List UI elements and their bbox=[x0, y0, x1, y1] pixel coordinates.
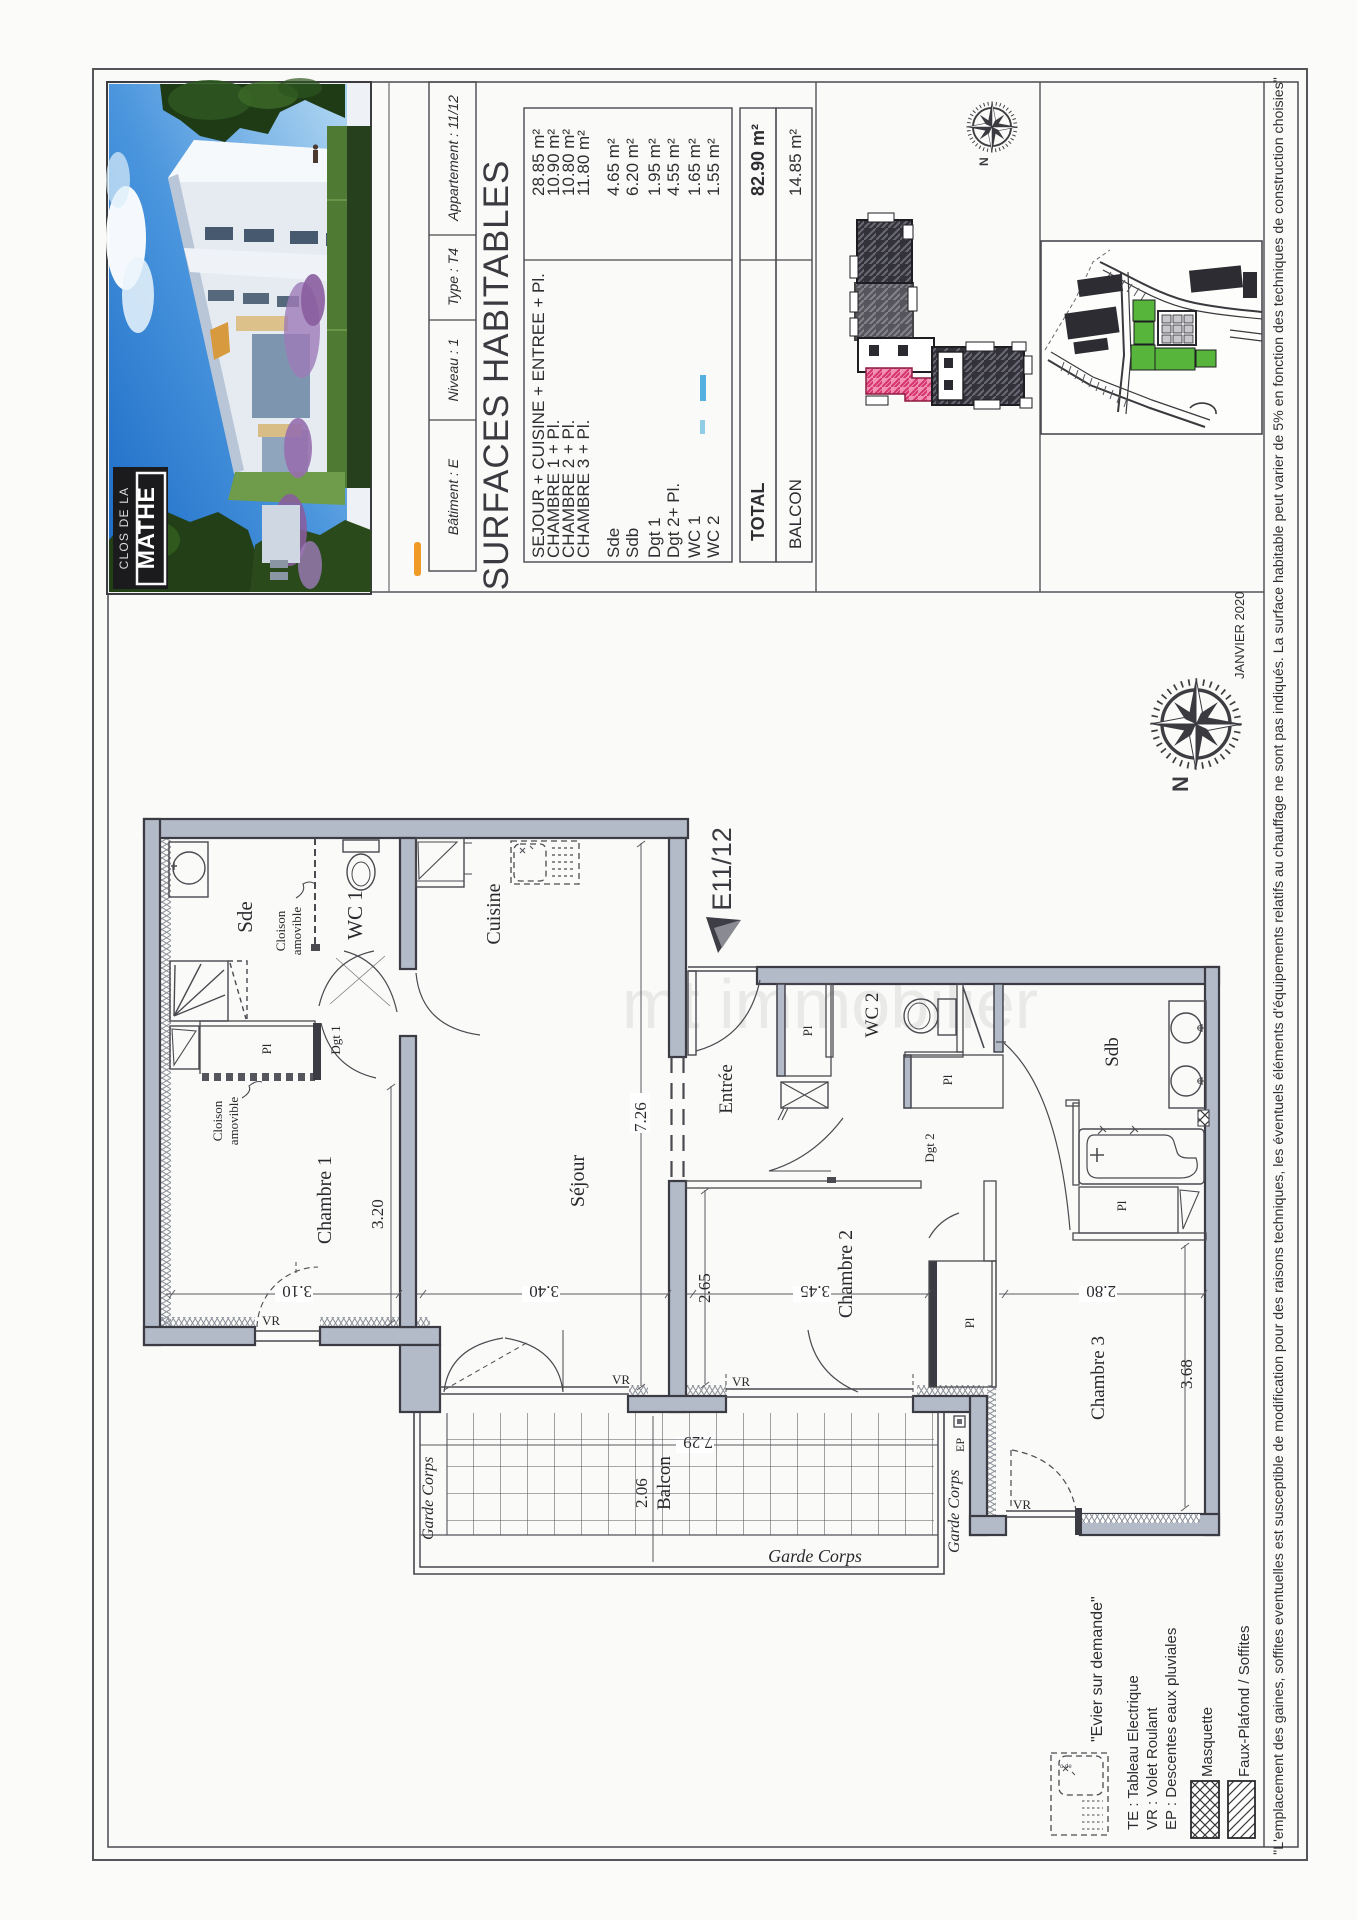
svg-text:Chambre 1: Chambre 1 bbox=[314, 1156, 336, 1244]
svg-text:WC 1: WC 1 bbox=[343, 890, 367, 940]
svg-text:TOTAL: TOTAL bbox=[748, 483, 768, 541]
svg-text:o de: o de bbox=[1060, 1764, 1072, 1770]
svg-text:7.26: 7.26 bbox=[631, 1102, 650, 1132]
svg-text:Cloison: Cloison bbox=[210, 1100, 225, 1141]
svg-text:Niveau : 1: Niveau : 1 bbox=[445, 338, 461, 401]
svg-text:Bâtiment : E: Bâtiment : E bbox=[445, 458, 461, 535]
svg-text:EP : Descentes eaux pluviales: EP : Descentes eaux pluviales bbox=[1163, 1628, 1180, 1830]
svg-text:TE : Tableau Electrique: TE : Tableau Electrique bbox=[1125, 1675, 1142, 1830]
svg-text:Sdb: Sdb bbox=[623, 528, 642, 558]
svg-text:amovible: amovible bbox=[226, 1097, 241, 1146]
svg-text:EP: EP bbox=[953, 1438, 967, 1452]
svg-text:3.20: 3.20 bbox=[368, 1199, 387, 1229]
svg-text:N: N bbox=[977, 157, 991, 166]
svg-text:"Evier sur demande": "Evier sur demande" bbox=[1089, 1596, 1106, 1742]
svg-text:VR: VR bbox=[262, 1313, 280, 1328]
svg-text:Dgt 2+ Pl.: Dgt 2+ Pl. bbox=[664, 483, 683, 558]
svg-text:1.95 m²: 1.95 m² bbox=[645, 138, 664, 196]
svg-text:Pl: Pl bbox=[259, 1043, 274, 1054]
svg-text:amovible: amovible bbox=[289, 907, 304, 956]
svg-text:CHAMBRE 3 + Pl.: CHAMBRE 3 + Pl. bbox=[574, 420, 593, 558]
svg-text:BALCON: BALCON bbox=[786, 479, 805, 549]
svg-text:Garde Corps: Garde Corps bbox=[420, 1457, 437, 1540]
svg-text:14.85 m²: 14.85 m² bbox=[786, 129, 805, 196]
svg-text:WC 2: WC 2 bbox=[862, 993, 883, 1038]
svg-text:Chambre 2: Chambre 2 bbox=[835, 1230, 857, 1318]
svg-text:WC 1: WC 1 bbox=[685, 516, 704, 559]
svg-text:Appartement : 11/12: Appartement : 11/12 bbox=[445, 95, 461, 222]
svg-text:Type : T4: Type : T4 bbox=[445, 248, 461, 306]
svg-text:Sde: Sde bbox=[233, 901, 257, 933]
svg-text:3.68: 3.68 bbox=[1177, 1359, 1196, 1389]
svg-text:JANVIER 2020: JANVIER 2020 bbox=[1232, 592, 1247, 679]
svg-text:Cuisine: Cuisine bbox=[483, 883, 505, 944]
svg-text:Masquette: Masquette bbox=[1199, 1707, 1216, 1777]
svg-text:Chambre 3: Chambre 3 bbox=[1088, 1336, 1109, 1420]
svg-text:Entrée: Entrée bbox=[716, 1064, 737, 1114]
svg-text:WC 2: WC 2 bbox=[704, 516, 723, 559]
svg-text:Dgt 1: Dgt 1 bbox=[645, 517, 664, 558]
svg-text:Séjour: Séjour bbox=[567, 1155, 589, 1208]
svg-text:VR: VR bbox=[1013, 1497, 1031, 1512]
svg-text:4.65 m²: 4.65 m² bbox=[604, 138, 623, 196]
svg-text:Faux-Plafond / Soffites: Faux-Plafond / Soffites bbox=[1236, 1626, 1253, 1777]
svg-text:Dgt 1: Dgt 1 bbox=[328, 1025, 343, 1054]
svg-text:3.10: 3.10 bbox=[282, 1282, 312, 1301]
svg-text:Garde Corps: Garde Corps bbox=[768, 1546, 862, 1566]
svg-text:2.65: 2.65 bbox=[695, 1273, 714, 1303]
svg-text:3.45: 3.45 bbox=[800, 1282, 830, 1301]
svg-text:Garde Corps: Garde Corps bbox=[946, 1470, 963, 1553]
svg-text:CLOS DE LA: CLOS DE LA bbox=[117, 487, 131, 570]
svg-text:Cloison: Cloison bbox=[273, 910, 288, 951]
svg-text:Pl: Pl bbox=[1114, 1200, 1129, 1211]
svg-text:Pl: Pl bbox=[962, 1317, 977, 1328]
svg-text:MATHE: MATHE bbox=[133, 487, 159, 570]
svg-text:SURFACES HABITABLES: SURFACES HABITABLES bbox=[477, 160, 516, 591]
svg-text:Pl: Pl bbox=[800, 1025, 815, 1036]
svg-text:2.80: 2.80 bbox=[1086, 1282, 1116, 1301]
svg-text:VR : Volet Roulant: VR : Volet Roulant bbox=[1144, 1707, 1161, 1830]
svg-text:VR: VR bbox=[732, 1374, 750, 1389]
svg-text:Pl: Pl bbox=[940, 1074, 955, 1085]
svg-text:"L'emplacement des gaines, sof: "L'emplacement des gaines, soffites even… bbox=[1271, 77, 1287, 1855]
svg-text:4.55 m²: 4.55 m² bbox=[664, 138, 683, 196]
svg-text:E11/12: E11/12 bbox=[707, 827, 737, 911]
svg-text:Sdb: Sdb bbox=[1102, 1037, 1123, 1067]
svg-text:Sde: Sde bbox=[604, 528, 623, 558]
svg-text:3.40: 3.40 bbox=[529, 1282, 559, 1301]
svg-text:1.65 m²: 1.65 m² bbox=[685, 138, 704, 196]
svg-text:N: N bbox=[1168, 776, 1193, 792]
svg-text:1.55 m²: 1.55 m² bbox=[704, 138, 723, 196]
svg-text:11.80 m²: 11.80 m² bbox=[574, 130, 593, 196]
svg-text:VR: VR bbox=[612, 1372, 630, 1387]
svg-text:Dgt 2: Dgt 2 bbox=[922, 1133, 937, 1162]
svg-text:82.90 m²: 82.90 m² bbox=[748, 124, 768, 196]
svg-text:6.20 m²: 6.20 m² bbox=[623, 138, 642, 196]
svg-text:Balcon: Balcon bbox=[654, 1456, 675, 1510]
